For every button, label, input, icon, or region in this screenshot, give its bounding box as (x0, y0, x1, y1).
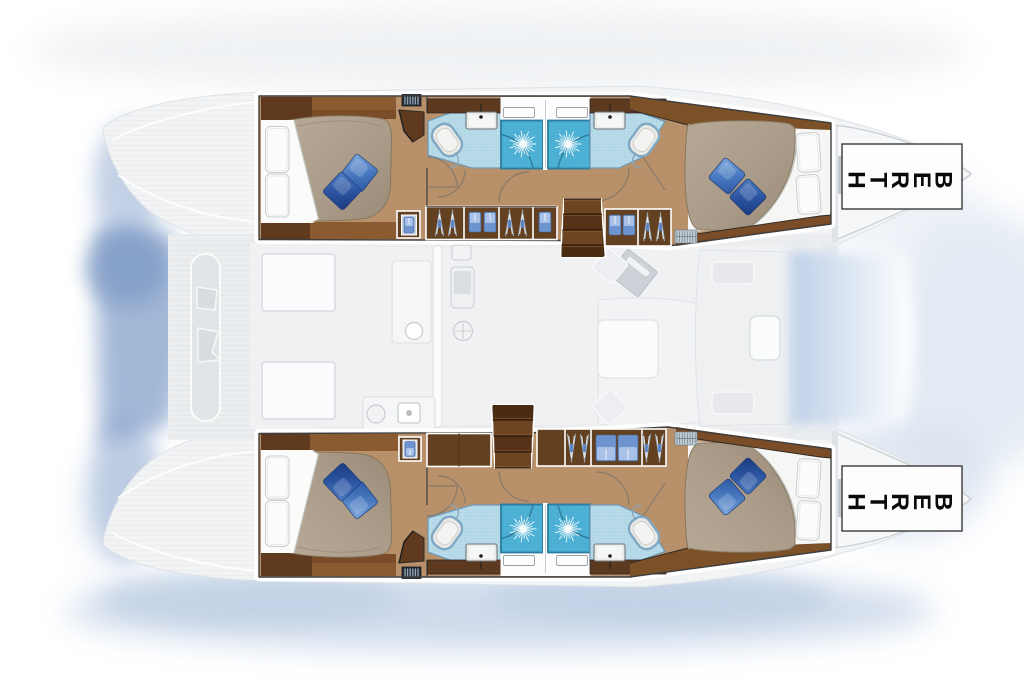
svg-text:B: B (930, 493, 957, 511)
svg-text:B: B (930, 171, 957, 189)
